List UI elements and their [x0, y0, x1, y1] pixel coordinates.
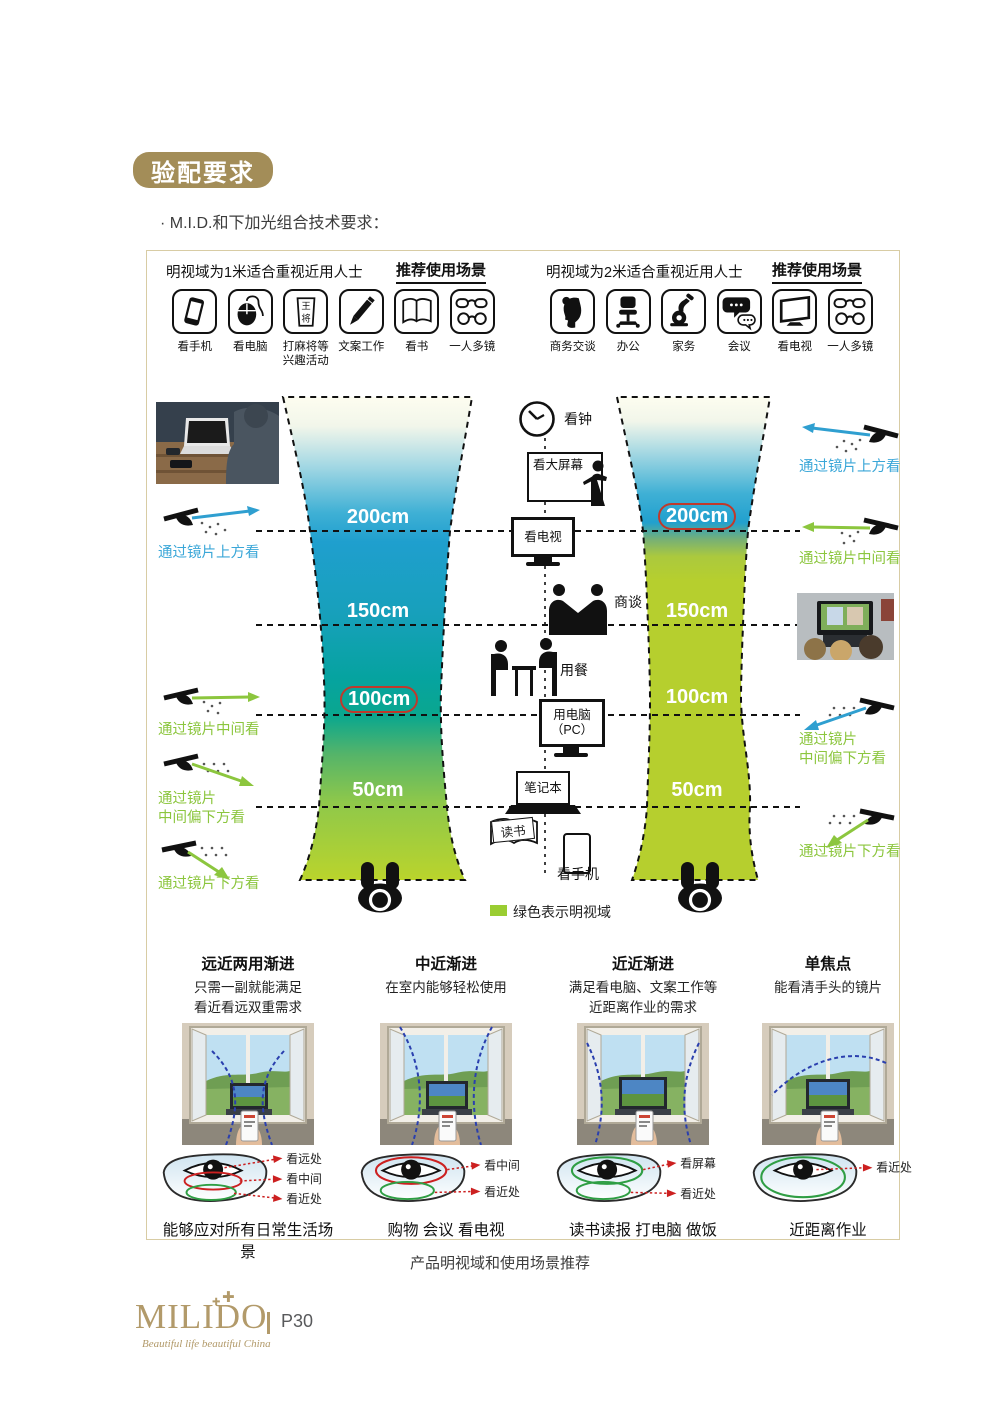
lens-type-desc: 能看清手头的镜片 [748, 978, 908, 998]
page-title: 验配要求 [151, 153, 255, 188]
lens-diagram-screen-near: 看屏幕 看近处 [552, 1150, 742, 1212]
eye-look-midlower-icon [162, 752, 262, 794]
lens-type-title: 中近渐进 [356, 952, 536, 974]
scenario-icon-cell: 家务 [656, 289, 712, 354]
scenario-icon-cell: 看书 [389, 289, 445, 369]
negotiation-silhouette-icon [545, 583, 611, 635]
lens-zone-diagram: 看近处 [748, 1150, 908, 1214]
lens-diagram-mid-near: 看中间 看近处 [356, 1150, 546, 1212]
window-scene-photo [380, 1023, 512, 1145]
laptop-keyboard [505, 805, 581, 814]
lens-type-caption: 购物 会议 看电视 [356, 1218, 536, 1240]
lens-zone-diagram: 看屏幕 看近处 [552, 1150, 734, 1214]
milido-logo: MILIDO [135, 1297, 258, 1339]
glasses-icon [830, 292, 870, 332]
footer-divider [267, 1312, 270, 1334]
left-distance-100-highlight: 100cm [340, 686, 418, 713]
scenario-left-title: 明视域为1米适合重视近用人士 [166, 261, 363, 282]
vacuum-icon [664, 292, 704, 332]
scenario-icon-cell: 王将 打麻将等 兴趣活动 [278, 289, 334, 369]
annotation-right-midlower: 通过镜片 中间偏下方看 [799, 731, 886, 769]
zone-label-screen: 看屏幕 [680, 1157, 716, 1171]
activity-phone-label: 看手机 [548, 864, 608, 884]
zone-label-near: 看近处 [484, 1185, 520, 1199]
lens-type-column-1: 远近两用渐进 只需一副就能满足 看近看远双重需求 [158, 952, 338, 1262]
left-distance-150: 150cm [333, 600, 423, 623]
scenario-icon-cell: 一人多镜 [445, 289, 501, 369]
scenario-icon-cell: 会议 [712, 289, 768, 354]
zone-label-mid: 看中间 [286, 1172, 322, 1186]
window-scene-photo [577, 1023, 709, 1145]
annotation-right-top: 通过镜片上方看 [799, 458, 901, 477]
lens-type-caption: 近距离作业 [748, 1218, 908, 1240]
clover-icon: ✚ [222, 1288, 235, 1306]
speech-bubbles-icon [719, 292, 759, 332]
lens-diagram-far-mid-near: 看远处 看中间 看近处 [158, 1150, 348, 1212]
lens-type-column-2: 中近渐进 在室内能够轻松使用 [356, 952, 536, 1240]
logo-tagline: Beautiful life beautiful China [142, 1338, 271, 1350]
scenario-right-title: 明视域为2米适合重视近用人士 [546, 261, 743, 282]
eye-look-middle-icon [800, 514, 900, 554]
phone-icon [175, 292, 215, 332]
scenario-icon-cell: 看手机 [167, 289, 223, 369]
laptop-desk-photo [156, 402, 279, 484]
lens-type-title: 近近渐进 [552, 952, 734, 974]
lens-zone-diagram: 看中间 看近处 [356, 1150, 536, 1214]
activity-laptop: 笔记本 [516, 771, 570, 805]
mouse-icon [230, 292, 270, 332]
annotation-right-lower: 通过镜片下方看 [799, 843, 901, 862]
eye-look-up-icon [800, 420, 900, 462]
scenario-left-recommend: 推荐使用场景 [396, 259, 486, 284]
family-tv-photo [797, 593, 894, 660]
annotation-left-middle: 通过镜片中间看 [158, 721, 260, 740]
activity-clock-label: 看钟 [564, 409, 592, 429]
tv-base [526, 562, 560, 566]
right-distance-100: 100cm [652, 686, 742, 709]
left-distance-200: 200cm [333, 506, 423, 529]
clock-icon [517, 399, 557, 439]
clover-icon: ✚ [212, 1297, 220, 1308]
scenario-icon-cell: 看电视 [767, 289, 823, 354]
tech-requirement-note: · M.I.D.和下加光组合技术要求： [160, 209, 388, 233]
zone-label-far: 看远处 [286, 1152, 322, 1166]
annotation-left-lower: 通过镜片下方看 [158, 875, 260, 894]
presenter-silhouette-icon [581, 460, 611, 506]
lens-type-caption: 读书读报 打电脑 做饭 [552, 1218, 734, 1240]
lens-type-title: 单焦点 [748, 952, 908, 974]
mahjong-tile-icon: 王将 [286, 292, 326, 332]
dining-silhouette-icon [486, 636, 562, 696]
svg-text:王: 王 [301, 300, 310, 310]
figure-caption: 产品明视域和使用场景推荐 [0, 1252, 1000, 1273]
svg-text:将: 将 [301, 313, 310, 323]
activity-reading: 读书 [491, 817, 535, 843]
zone-label-near: 看近处 [680, 1187, 716, 1201]
pen-icon [341, 292, 381, 332]
annotation-left-midlower: 通过镜片 中间偏下方看 [158, 790, 245, 828]
book-icon [397, 292, 437, 332]
activity-pc: 用电脑 （PC） [539, 699, 605, 747]
lens-type-title: 远近两用渐进 [158, 952, 338, 974]
window-scene-photo [182, 1023, 314, 1145]
lens-type-desc: 满足看电脑、文案工作等 近距离作业的需求 [552, 978, 734, 1017]
legend-label: 绿色表示明视域 [513, 902, 611, 922]
lens-type-desc: 在室内能够轻松使用 [356, 978, 536, 998]
zone-label-near: 看近处 [876, 1160, 912, 1174]
window-scene-photo [762, 1023, 894, 1145]
right-distance-200-highlight: 200cm [658, 503, 736, 530]
zone-label-near: 看近处 [286, 1192, 322, 1206]
scenario-right-icons: 商务交谈 办公 家务 会议 看电视 一人多镜 [545, 289, 878, 354]
right-distance-50: 50cm [652, 779, 742, 802]
page-number: P30 [281, 1311, 313, 1332]
right-distance-150: 150cm [652, 600, 742, 623]
lens-diagram-near-only: 看近处 [748, 1150, 938, 1212]
scenario-right-recommend: 推荐使用场景 [772, 259, 862, 284]
right-vision-funnel [617, 397, 770, 880]
zone-label-mid: 看中间 [484, 1158, 520, 1172]
scenario-icon-cell: 商务交谈 [545, 289, 601, 354]
left-distance-50: 50cm [333, 779, 423, 802]
legend-green-swatch [490, 905, 507, 916]
lens-type-column-4: 单焦点 能看清手头的镜片 看近处 [748, 952, 908, 1240]
eye-look-up-icon [162, 503, 262, 545]
annotation-left-top: 通过镜片上方看 [158, 544, 260, 563]
activity-negotiate-label: 商谈 [614, 592, 642, 612]
scenario-icon-cell: 看电脑 [223, 289, 279, 369]
lens-zone-diagram: 看远处 看中间 看近处 [158, 1150, 338, 1214]
activity-dining-label: 用餐 [560, 660, 588, 680]
person-profile-icon [553, 292, 593, 332]
tv-icon [775, 292, 815, 332]
glasses-icon [452, 292, 492, 332]
page-title-badge: 验配要求 [133, 152, 273, 188]
scenario-icon-cell: 办公 [601, 289, 657, 354]
annotation-right-middle: 通过镜片中间看 [799, 550, 901, 569]
lens-type-desc: 只需一副就能满足 看近看远双重需求 [158, 978, 338, 1017]
office-chair-icon [608, 292, 648, 332]
eye-look-middle-icon [162, 684, 262, 724]
lens-type-column-3: 近近渐进 满足看电脑、文案工作等 近距离作业的需求 [552, 952, 734, 1240]
pc-base [554, 753, 588, 757]
scenario-left-icons: 看手机 看电脑 王将 打麻将等 兴趣活动 文案工作 看书 一人多镜 [167, 289, 500, 369]
scenario-icon-cell: 文案工作 [334, 289, 390, 369]
activity-tv: 看电视 [511, 517, 575, 557]
catalog-page: 验配要求 · M.I.D.和下加光组合技术要求： 明视域为1米适合重视近用人士 … [0, 0, 1000, 1402]
scenario-icon-cell: 一人多镜 [823, 289, 879, 354]
